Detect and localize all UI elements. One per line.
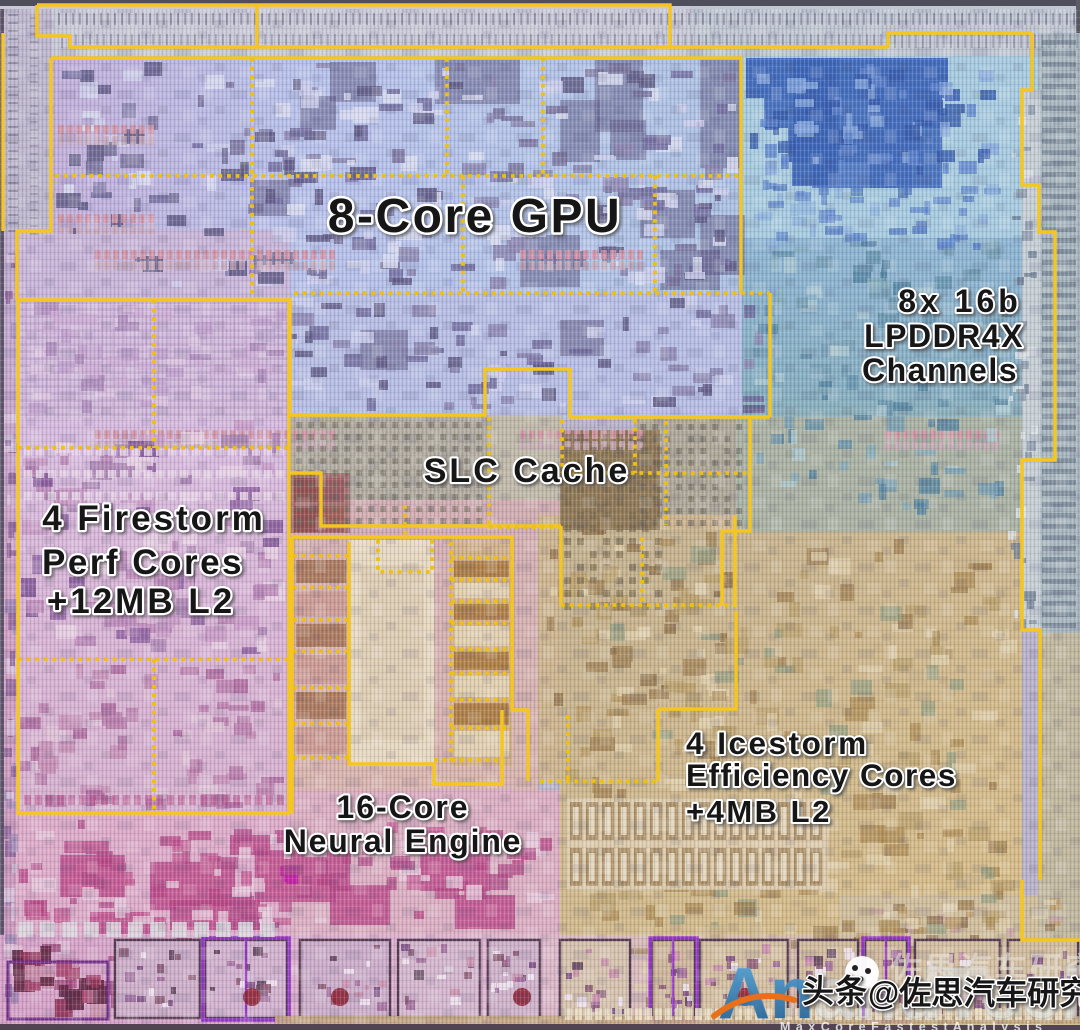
svg-text:8-Core GPU: 8-Core GPU [328, 190, 622, 243]
svg-text:An: An [718, 954, 814, 1030]
svg-text:16-Core: 16-Core [336, 789, 469, 825]
svg-text:@佐思汽车研究: @佐思汽车研究 [868, 975, 1080, 1011]
svg-text:LPDDR4X: LPDDR4X [864, 318, 1024, 354]
svg-text:SLC Cache: SLC Cache [424, 452, 631, 490]
svg-text:4 Icestorm: 4 Icestorm [686, 725, 869, 761]
svg-text:Efficiency Cores: Efficiency Cores [686, 757, 957, 793]
svg-text:8x 16b: 8x 16b [898, 283, 1022, 319]
svg-text:4 Firestorm: 4 Firestorm [42, 499, 266, 538]
svg-text:M a x C o r e F a s t e s t: M a x C o r e F a s t e s t A n a l y s … [780, 1020, 1043, 1030]
svg-text:Channels: Channels [862, 352, 1018, 388]
svg-text:Neural Engine: Neural Engine [284, 823, 523, 859]
svg-text:头条: 头条 [802, 973, 868, 1009]
svg-text:Perf Cores: Perf Cores [42, 543, 244, 582]
svg-text:+12MB L2: +12MB L2 [47, 582, 235, 621]
svg-text:+4MB L2: +4MB L2 [686, 794, 832, 829]
